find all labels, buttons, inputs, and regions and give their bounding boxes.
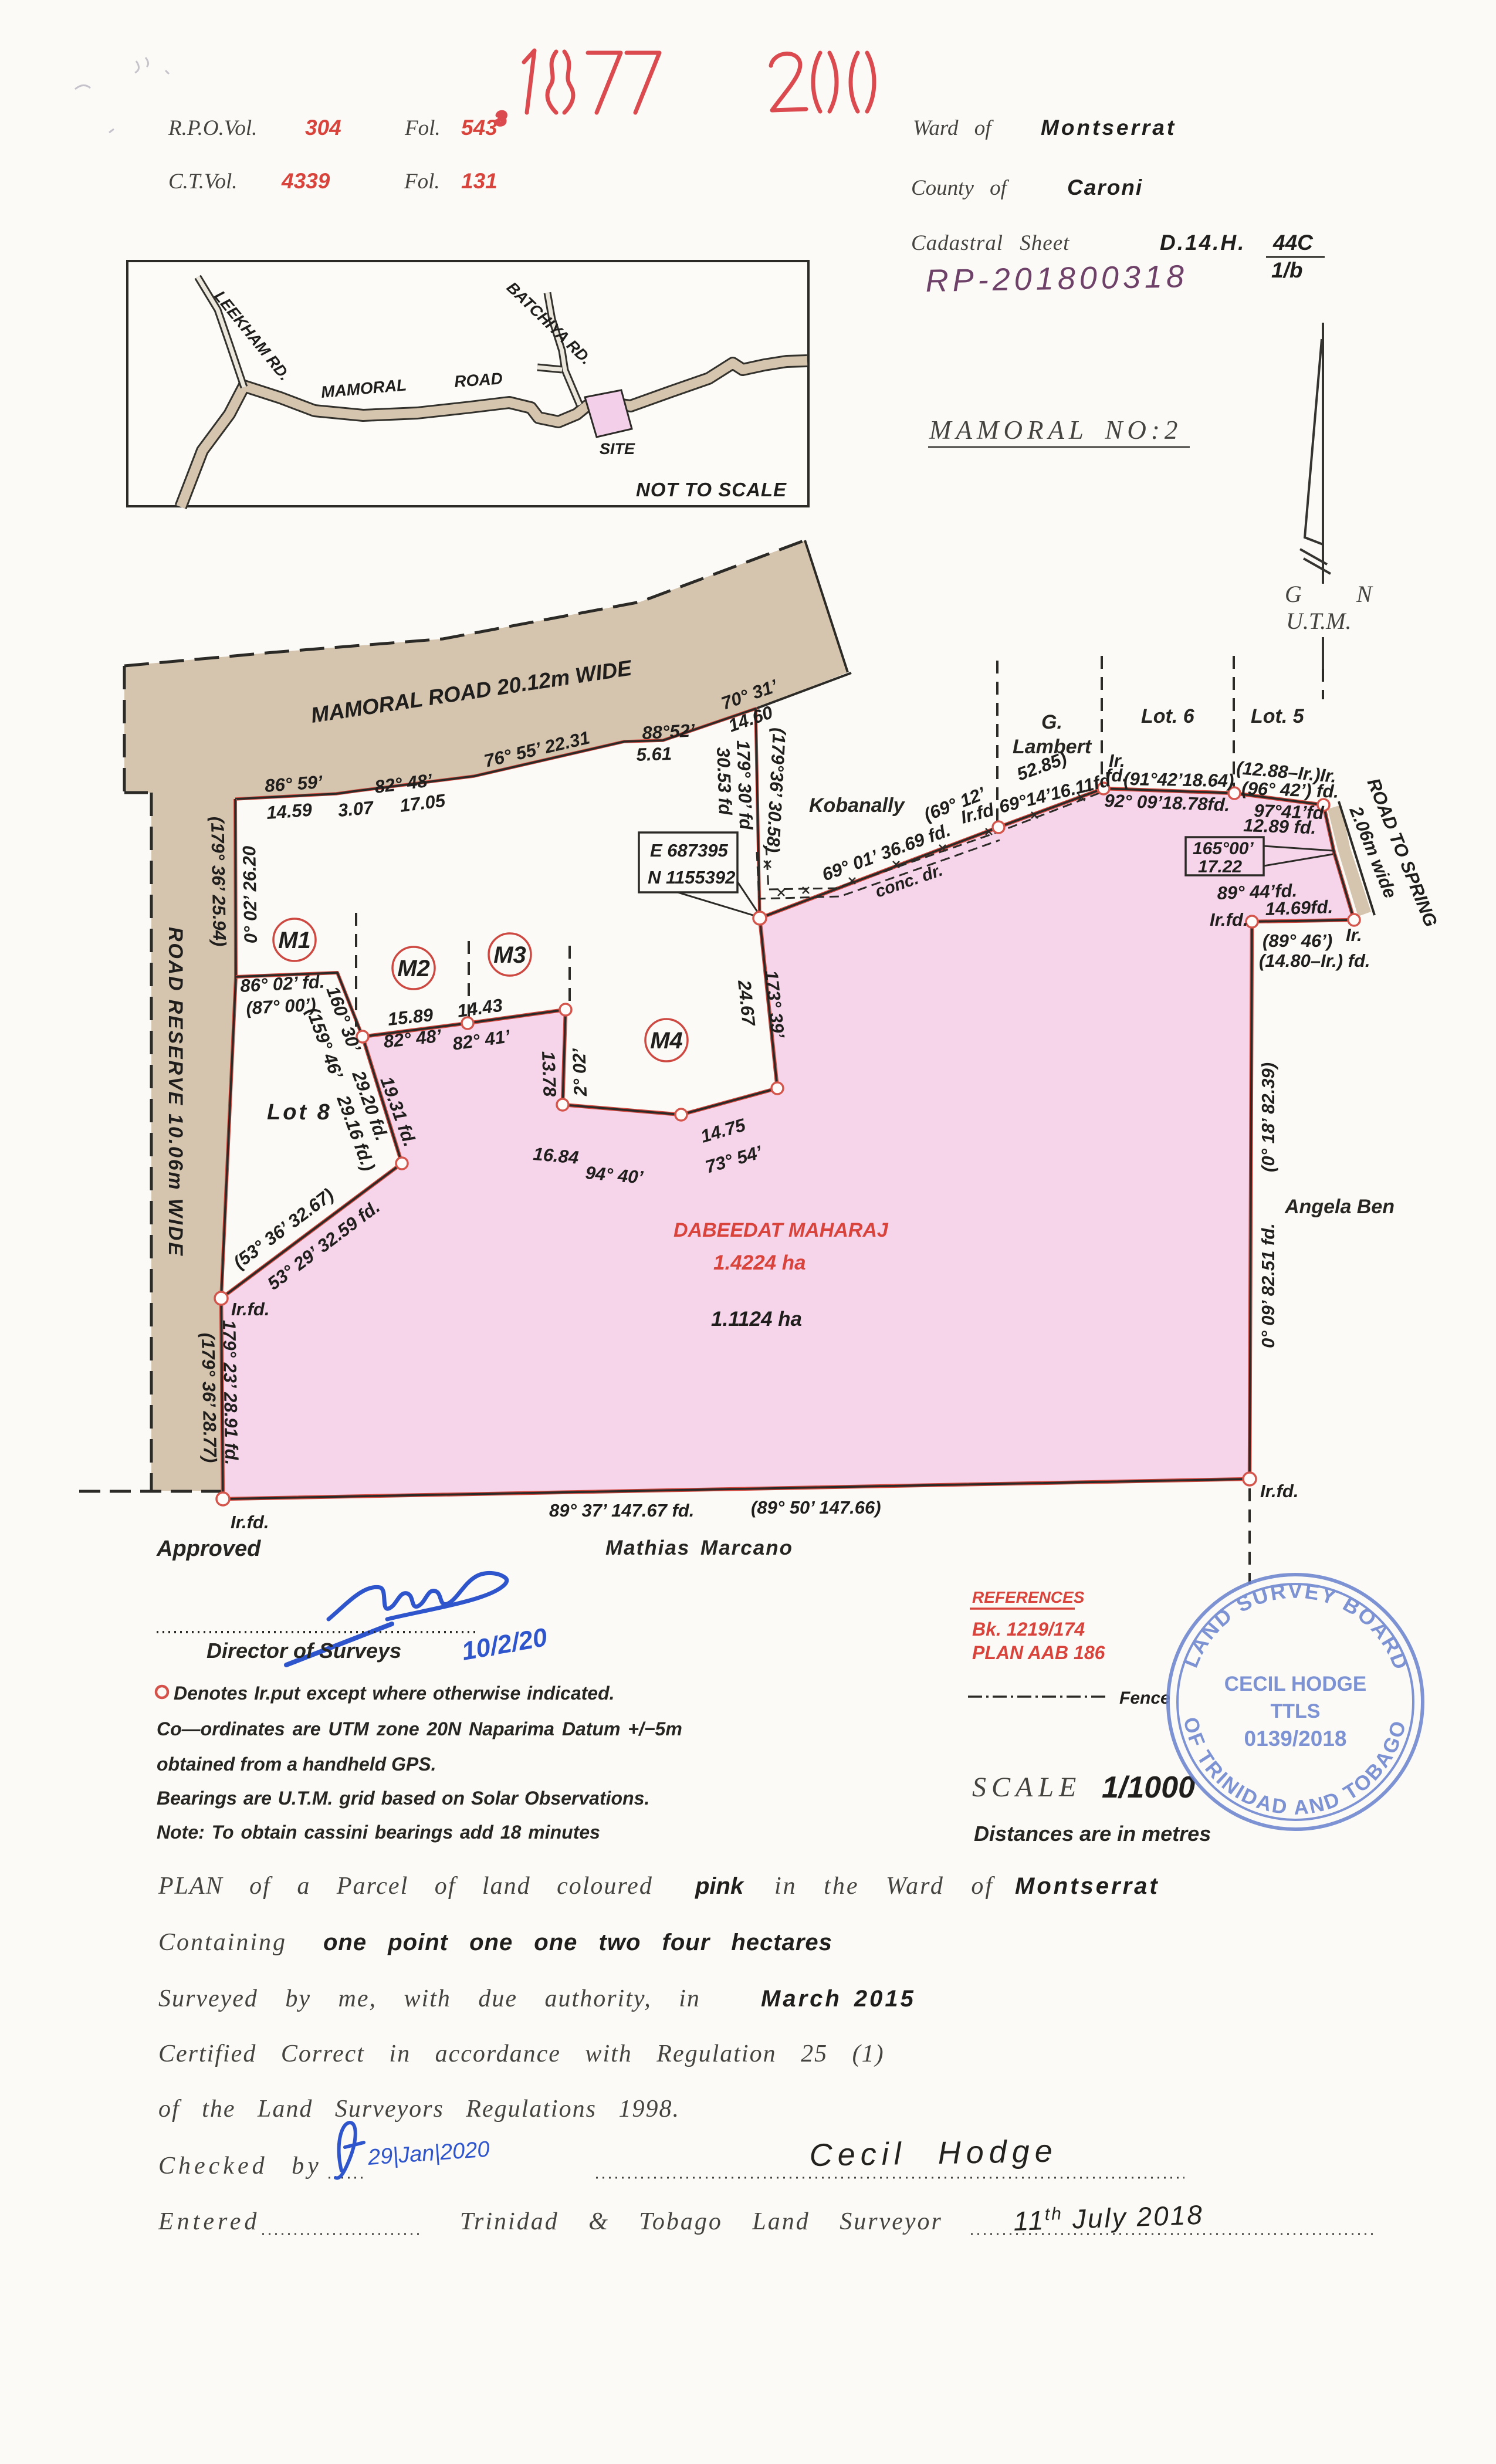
- svg-text:TTLS: TTLS: [1271, 1700, 1321, 1722]
- svg-text:(91°42’18.64): (91°42’18.64): [1123, 769, 1234, 791]
- svg-text:Fol.: Fol.: [404, 116, 441, 140]
- svg-text:(0° 18’ 82.39): (0° 18’ 82.39): [1258, 1062, 1278, 1172]
- svg-text:CECIL HODGE: CECIL HODGE: [1224, 1673, 1366, 1695]
- svg-text:Ir.: Ir.: [1346, 925, 1362, 945]
- svg-text:0139/2018: 0139/2018: [1244, 1727, 1347, 1751]
- svg-text:3.07: 3.07: [337, 797, 375, 821]
- svg-text:(179° 36’ 28.77): (179° 36’ 28.77): [198, 1333, 221, 1463]
- svg-text:of the Land Surveyors Regu: of the Land Surveyors Regulations 1998.: [158, 2096, 680, 2123]
- svg-text:86° 02’ fd.: 86° 02’ fd.: [240, 972, 326, 996]
- svg-text:(96° 42’) fd.: (96° 42’) fd.: [1241, 778, 1339, 802]
- svg-text:88°52’: 88°52’: [642, 720, 696, 743]
- svg-text:R.P.O.Vol.: R.P.O.Vol.: [168, 116, 257, 140]
- svg-text:REFERENCES: REFERENCES: [972, 1588, 1085, 1606]
- svg-text:5.61: 5.61: [636, 743, 672, 765]
- svg-text:1.4224 ha: 1.4224 ha: [713, 1251, 806, 1274]
- svg-text:Surveyed by me, with due a: Surveyed by me, with due authority, in: [158, 1985, 700, 2012]
- svg-text:Director of Surveys: Director of Surveys: [207, 1639, 401, 1663]
- svg-text:92° 09’18.78fd.: 92° 09’18.78fd.: [1104, 790, 1230, 815]
- svg-text:MAMORAL NO:2: MAMORAL NO:2: [929, 415, 1182, 445]
- svg-text:1.1124 ha: 1.1124 ha: [711, 1308, 802, 1331]
- svg-text:Trinidad & Tobago Land Sur: Trinidad & Tobago Land Surveyor: [460, 2208, 943, 2235]
- svg-text:165°00’: 165°00’: [1193, 839, 1254, 858]
- svg-text:131: 131: [461, 169, 497, 193]
- svg-text:RP-201800318: RP-201800318: [925, 259, 1188, 299]
- svg-text:Montserrat: Montserrat: [1015, 1873, 1160, 1899]
- svg-text:Fol.: Fol.: [404, 170, 440, 194]
- svg-text:SITE: SITE: [600, 440, 635, 458]
- svg-text:County of: County of: [911, 176, 1010, 200]
- svg-text:Cadastral Sheet: Cadastral Sheet: [911, 231, 1070, 255]
- svg-text:N: N: [1356, 581, 1373, 607]
- svg-text:15.89: 15.89: [387, 1004, 435, 1030]
- svg-text:Co—ordinates are UTM zone: Co—ordinates are UTM zone 20N Naparima D…: [157, 1718, 682, 1739]
- svg-text:(14.80–Ir.) fd.: (14.80–Ir.) fd.: [1259, 950, 1370, 971]
- svg-text:179° 23’ 28.91 fd.: 179° 23’ 28.91 fd.: [219, 1320, 242, 1465]
- svg-text:G: G: [1285, 581, 1302, 607]
- svg-text:N 1155392: N 1155392: [648, 867, 735, 888]
- svg-text:543: 543: [461, 116, 497, 140]
- svg-text:179° 30’ fd: 179° 30’ fd: [733, 740, 756, 831]
- svg-text:Ir.fd.: Ir.fd.: [1210, 909, 1248, 930]
- svg-text:Caroni: Caroni: [1067, 175, 1143, 199]
- svg-text:24.67: 24.67: [734, 979, 759, 1028]
- svg-text:14.69fd.: 14.69fd.: [1265, 896, 1333, 919]
- svg-text:(89° 46’): (89° 46’): [1263, 930, 1332, 951]
- svg-text:M1: M1: [278, 928, 311, 953]
- svg-text:DABEEDAT MAHARAJ: DABEEDAT MAHARAJ: [673, 1219, 889, 1241]
- svg-text:Fence: Fence: [1119, 1688, 1170, 1708]
- svg-text:Entered: Entered: [158, 2208, 260, 2235]
- svg-text:0° 02’ 26.20: 0° 02’ 26.20: [239, 846, 261, 944]
- svg-text:D.14.H.: D.14.H.: [1160, 231, 1245, 255]
- svg-text:17.22: 17.22: [1198, 857, 1242, 876]
- svg-text:PLAN of a Parcel of land: PLAN of a Parcel of land coloured: [158, 1873, 653, 1900]
- svg-text:SCALE: SCALE: [972, 1772, 1081, 1803]
- svg-text:2° 02’: 2° 02’: [568, 1048, 591, 1097]
- svg-text:M2: M2: [397, 956, 430, 981]
- svg-text:Ir.fd.: Ir.fd.: [231, 1299, 269, 1319]
- svg-text:C.T.Vol.: C.T.Vol.: [168, 170, 238, 194]
- svg-text:13.78: 13.78: [538, 1051, 560, 1098]
- svg-text:Checked by: Checked by: [158, 2152, 322, 2179]
- svg-text:0° 09’ 82.51 fd.: 0° 09’ 82.51 fd.: [1258, 1223, 1278, 1348]
- svg-text:PLAN AAB 186: PLAN AAB 186: [972, 1642, 1105, 1663]
- svg-text:11th July 2018: 11th July 2018: [1013, 2199, 1204, 2236]
- svg-text:Lot 8: Lot 8: [267, 1100, 332, 1125]
- svg-text:Containing: Containing: [158, 1929, 287, 1956]
- svg-text:March 2015: March 2015: [761, 1986, 916, 2012]
- svg-text:Lot. 6: Lot. 6: [1141, 705, 1195, 727]
- svg-text:Lot. 5: Lot. 5: [1251, 705, 1305, 727]
- svg-text:Angela Ben: Angela Ben: [1284, 1196, 1395, 1218]
- svg-text:Bearings are U.T.M. grid b: Bearings are U.T.M. grid based on Solar …: [157, 1788, 649, 1809]
- svg-text:pink: pink: [695, 1873, 744, 1899]
- svg-text:89° 37’ 147.67 fd.: 89° 37’ 147.67 fd.: [549, 1500, 694, 1521]
- svg-text:(89° 50’ 147.66): (89° 50’ 147.66): [751, 1497, 881, 1518]
- svg-text:LAND SURVEY BOARD: LAND SURVEY BOARD: [1178, 1579, 1414, 1674]
- svg-text:ROAD: ROAD: [453, 369, 503, 391]
- svg-text:Bk. 1219/174: Bk. 1219/174: [972, 1619, 1085, 1640]
- svg-text:(179°36’ 30.58): (179°36’ 30.58): [763, 727, 790, 853]
- svg-text:Ir.fd.: Ir.fd.: [231, 1512, 269, 1532]
- svg-text:44C: 44C: [1272, 231, 1314, 255]
- svg-text:E 687395: E 687395: [650, 840, 728, 861]
- svg-text:Distances are in metres: Distances are in metres: [974, 1822, 1211, 1846]
- svg-text:Note: To obtain cassini be: Note: To obtain cassini bearings add 18 …: [157, 1822, 600, 1843]
- svg-text:17.05: 17.05: [399, 790, 447, 816]
- svg-text:G.: G.: [1041, 711, 1062, 733]
- svg-text:M4: M4: [650, 1028, 683, 1054]
- svg-text:3: 3: [496, 109, 506, 128]
- svg-text:Kobanally: Kobanally: [809, 794, 906, 817]
- svg-text:Cecil Hodge: Cecil Hodge: [809, 2134, 1058, 2173]
- svg-text:4339: 4339: [281, 169, 330, 193]
- svg-text:(179° 36’ 25.94): (179° 36’ 25.94): [207, 817, 230, 947]
- svg-text:ROAD RESERVE 10.06m WIDE: ROAD RESERVE 10.06m WIDE: [164, 927, 187, 1256]
- svg-text:U.T.M.: U.T.M.: [1286, 608, 1351, 634]
- svg-text:Montserrat: Montserrat: [1041, 116, 1176, 140]
- svg-text:Approved: Approved: [156, 1536, 261, 1561]
- svg-text:14.59: 14.59: [266, 800, 313, 823]
- svg-text:30.53 fd: 30.53 fd: [713, 747, 736, 816]
- svg-text:obtained from a handheld GPS.: obtained from a handheld GPS.: [157, 1754, 436, 1775]
- svg-text:12.89 fd.: 12.89 fd.: [1243, 815, 1316, 838]
- svg-text:1/b: 1/b: [1271, 258, 1302, 282]
- svg-text:in the Ward of: in the Ward of: [774, 1873, 995, 1900]
- svg-text:Certified Correct in accord: Certified Correct in accordance with Reg…: [158, 2040, 885, 2067]
- svg-text:M3: M3: [493, 942, 526, 968]
- svg-text:Ward of: Ward of: [913, 116, 994, 140]
- svg-text:1/1000: 1/1000: [1102, 1771, 1195, 1805]
- svg-text:86° 59’: 86° 59’: [264, 771, 323, 796]
- svg-text:Denotes Ir.put except where: Denotes Ir.put except where otherwise in…: [174, 1683, 615, 1704]
- svg-text:10/2/20: 10/2/20: [459, 1623, 550, 1666]
- svg-text:304: 304: [305, 116, 341, 140]
- svg-text:one point one one two fou: one point one one two four hectares: [323, 1930, 832, 1955]
- svg-text:Mathias Marcano: Mathias Marcano: [605, 1536, 793, 1559]
- svg-text:29|Jan|2020: 29|Jan|2020: [367, 2137, 490, 2170]
- svg-text:Ir.fd.: Ir.fd.: [1260, 1481, 1298, 1501]
- svg-text:NOT TO SCALE: NOT TO SCALE: [636, 479, 787, 500]
- svg-text:16.84: 16.84: [532, 1143, 579, 1168]
